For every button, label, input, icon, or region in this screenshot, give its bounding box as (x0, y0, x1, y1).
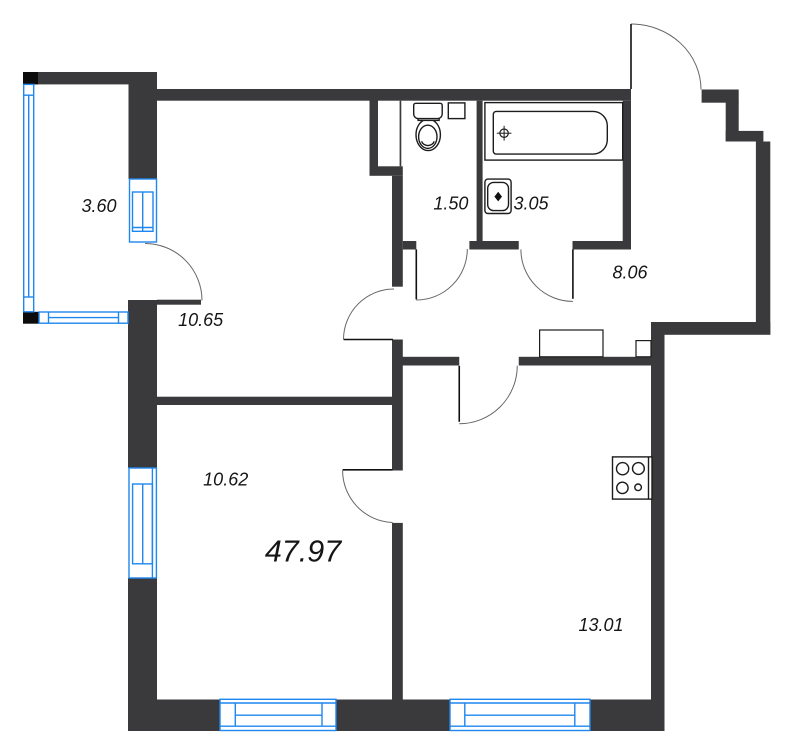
svg-text:1.50: 1.50 (433, 193, 468, 213)
svg-text:8.06: 8.06 (612, 263, 648, 283)
svg-text:47.97: 47.97 (265, 535, 342, 569)
svg-text:3.60: 3.60 (81, 196, 116, 216)
svg-text:3.05: 3.05 (513, 193, 549, 213)
svg-text:13.01: 13.01 (578, 615, 623, 635)
svg-text:10.62: 10.62 (203, 470, 248, 490)
svg-text:10.65: 10.65 (178, 310, 224, 330)
